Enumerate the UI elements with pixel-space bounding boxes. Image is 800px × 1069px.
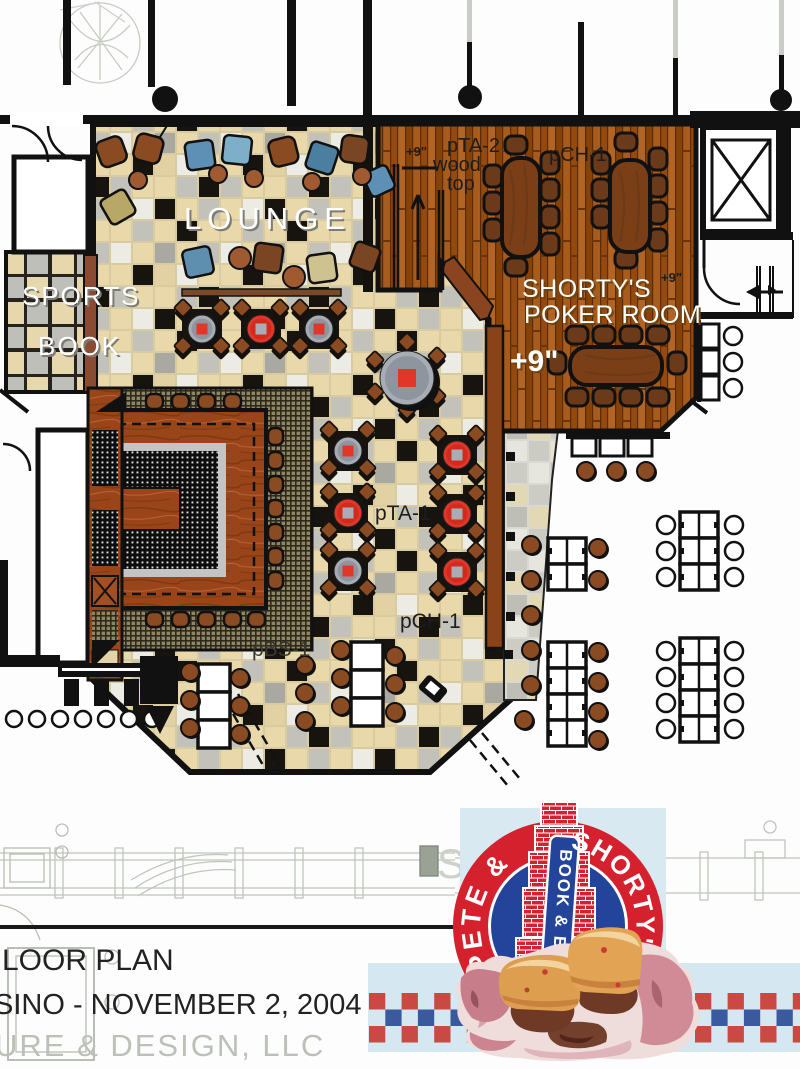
svg-text:pCH-1: pCH-1 bbox=[400, 610, 461, 633]
svg-text:pCH-1: pCH-1 bbox=[549, 144, 607, 166]
svg-text:BOOK: BOOK bbox=[38, 331, 121, 361]
svg-text:SINO - NOVEMBER 2, 2004: SINO - NOVEMBER 2, 2004 bbox=[0, 989, 361, 1021]
svg-text:LOOR PLAN: LOOR PLAN bbox=[2, 944, 174, 977]
svg-text:+9": +9" bbox=[406, 144, 427, 159]
svg-text:pTA-1: pTA-1 bbox=[375, 502, 431, 525]
svg-text:URE & DESIGN, LLC: URE & DESIGN, LLC bbox=[0, 1028, 325, 1063]
svg-text:SPORTS: SPORTS bbox=[22, 281, 140, 311]
svg-text:pBS-1: pBS-1 bbox=[252, 638, 310, 661]
svg-text:top: top bbox=[447, 173, 475, 195]
svg-text:+9": +9" bbox=[510, 345, 558, 378]
svg-text:SHORTY'S: SHORTY'S bbox=[522, 275, 651, 303]
svg-text:LOUNGE: LOUNGE bbox=[184, 201, 351, 236]
svg-text:+9": +9" bbox=[661, 270, 682, 285]
svg-text:POKER ROOM: POKER ROOM bbox=[524, 301, 701, 329]
